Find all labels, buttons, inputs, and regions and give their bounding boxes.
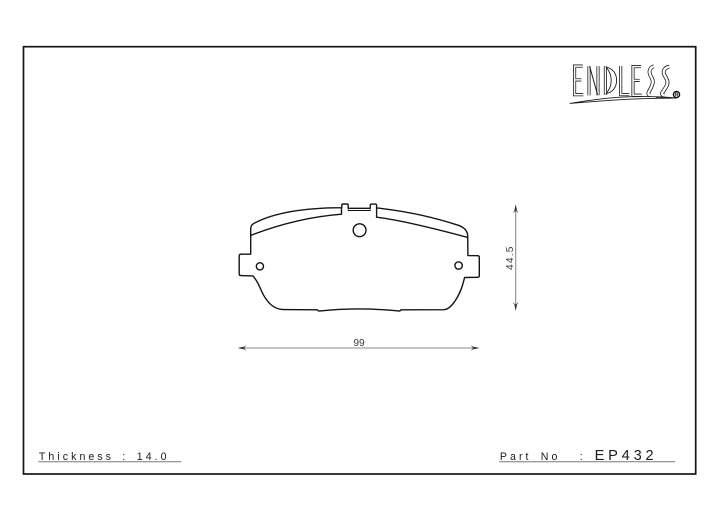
- svg-text:Thickness: Thickness: [39, 451, 114, 463]
- svg-text:No: No: [541, 451, 561, 463]
- svg-text:44.5: 44.5: [505, 245, 516, 270]
- svg-text:14.0: 14.0: [137, 451, 170, 463]
- svg-text::: :: [580, 451, 586, 463]
- svg-text:99: 99: [353, 338, 365, 349]
- svg-text:Part: Part: [500, 451, 532, 463]
- svg-text::: :: [122, 451, 128, 463]
